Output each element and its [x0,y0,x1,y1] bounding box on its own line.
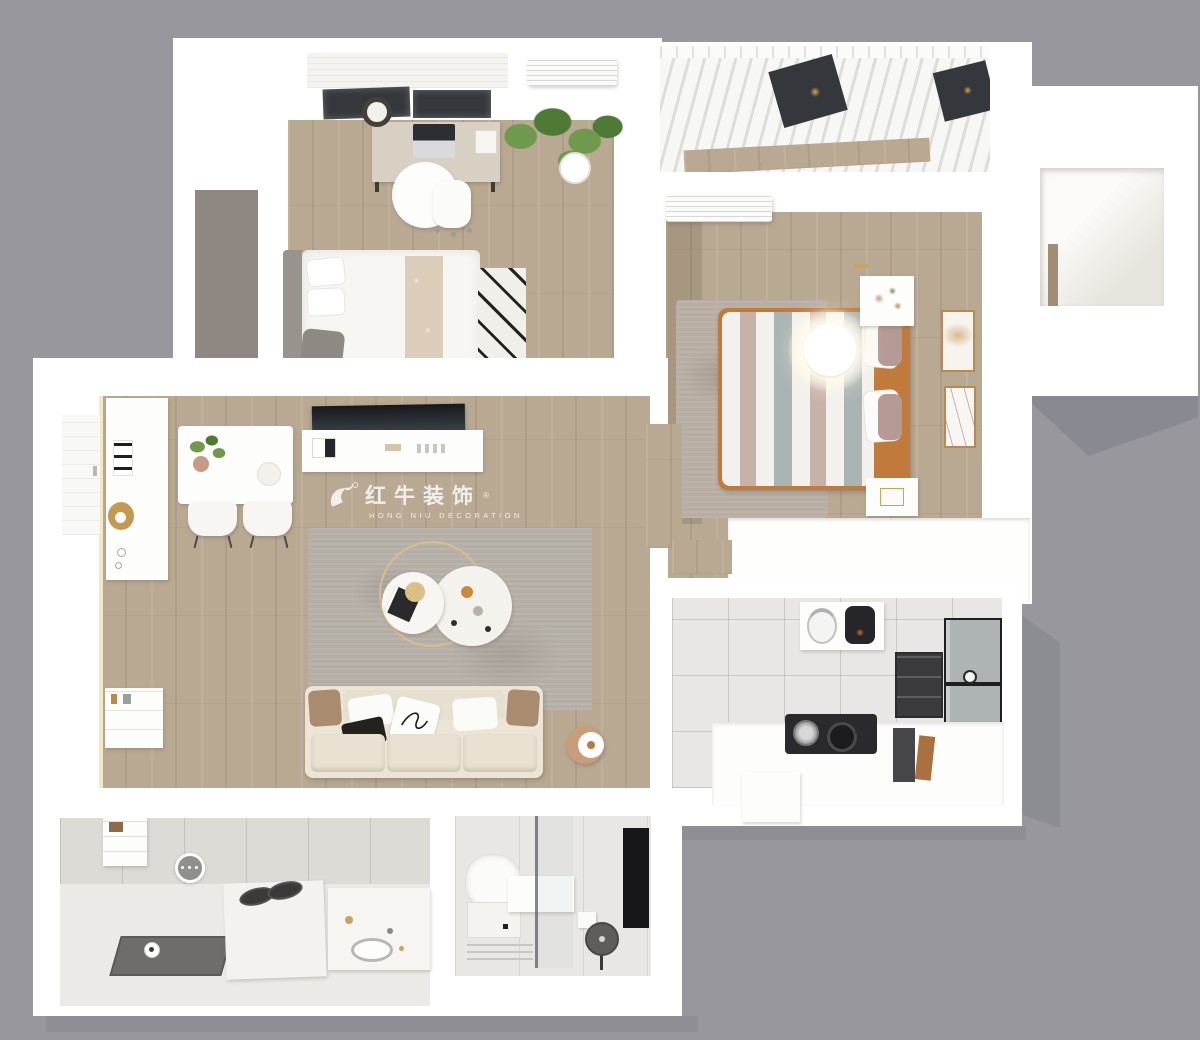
dining-chair [243,502,292,536]
chair-wheel [435,228,440,233]
pillow [878,322,902,366]
cast-shadow [670,826,1026,840]
wok-pan [827,722,857,752]
flush-button [503,924,508,929]
rice-cooker-black [845,606,875,644]
chair-wheel [451,232,456,237]
coffee-table-large [432,566,512,646]
balcony [660,46,990,172]
rice-cooker-white [807,608,837,644]
balcony-window [768,54,847,128]
window-blind [307,53,508,88]
table-decor [485,626,491,632]
control-dot [188,866,191,869]
room-kitchen [655,578,1022,826]
board-dish [115,512,126,523]
cabinet-books [111,694,131,704]
open-cabinet-dark [895,652,943,718]
desk-leg [375,182,379,192]
shelf-item [109,822,123,832]
laptop [413,124,455,158]
desk-lamp [362,97,392,127]
decor-ring [115,562,122,569]
decor-ring [117,548,126,557]
vase-center [587,741,595,749]
registered-mark: ® [483,491,489,500]
pillow [306,256,347,288]
side-cabinet [106,398,168,580]
armrest-cushion [308,689,342,727]
potted-plant [495,98,623,194]
seat-cushion [311,734,385,772]
gold-fixture-dot [399,946,404,951]
table-gold-plate [405,582,425,602]
dinner-plate [257,462,281,486]
console-decor [417,444,445,453]
sofa [305,686,543,778]
bull-logo-icon [325,481,359,509]
ac-vent [527,58,617,86]
cast-shadow [1022,602,1060,828]
plant-pot [559,152,591,184]
watermark-brand-en: HONG NIU DECORATION [369,511,523,520]
fan-hub [599,936,605,942]
glass-partition [535,816,573,968]
cooking-pot [793,720,819,746]
counter-box [742,772,800,822]
room-study-bedroom [173,38,662,400]
floorplan-render: 红牛装饰 ® HONG NIU DECORATION [0,0,1200,1040]
wall-sconce [854,264,868,268]
fixture-dot [387,928,393,934]
wall-art-small [113,440,133,476]
desk-book [475,130,497,154]
console-decor [385,444,401,451]
geometric-rug [478,268,526,364]
seat-cushion [387,734,461,772]
lower-dark-cabinet [893,728,915,782]
hallway-floor [646,424,682,548]
black-mirror-panel [623,828,649,928]
nightstand-tray [880,488,904,506]
table-decor [473,606,483,616]
towel-rack [467,942,533,960]
hallway-floor [672,540,732,574]
seat-cushion [463,734,537,772]
niche-opening [1040,168,1164,306]
door-handle [93,466,97,476]
chair-wheel [467,228,472,233]
paper-roll-core [149,947,154,952]
pillow [306,287,345,317]
window-glass [413,90,491,118]
console-decor [312,438,336,458]
office-chair [433,180,471,228]
niche-wood-edge [1048,244,1058,306]
pillow [452,697,498,732]
framed-art [944,386,976,448]
tv-screen [312,404,465,434]
flower-pot [193,456,209,472]
balcony-floor [684,138,931,172]
room-bathrooms [33,788,682,1016]
armrest-cushion [506,689,540,727]
ac-unit [666,196,772,222]
nightstand [860,276,914,326]
counter-sink [351,938,393,962]
bed-headboard [283,250,302,368]
pillow [878,394,902,440]
dining-chair [188,502,237,536]
table-decor [451,620,457,626]
balcony-window [933,60,990,122]
room-master-bedroom [648,42,1032,604]
pendant-light [804,324,856,376]
control-dot [195,866,198,869]
watermark: 红牛装饰 ® HONG NIU DECORATION [325,480,495,520]
table-decor [461,586,473,598]
wardrobe-panel [195,190,258,366]
cast-shadow [46,1016,698,1032]
entry-niche-volume [1012,86,1198,396]
control-dot [181,866,184,869]
gold-faucet [345,916,353,924]
framed-art [941,310,975,372]
shower-tray [109,936,232,976]
fridge-dispenser [963,670,977,684]
cast-shadow [1032,392,1198,456]
watermark-brand-cn: 红牛装饰 [365,480,481,510]
room-living-dining: 红牛装饰 ® HONG NIU DECORATION [33,358,668,818]
